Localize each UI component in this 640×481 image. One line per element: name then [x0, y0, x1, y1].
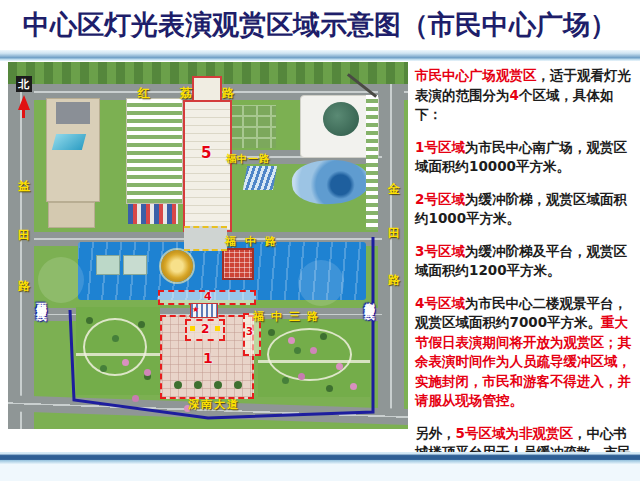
- north-arrow-stem: [22, 108, 25, 118]
- zone4-paragraph: 4号区域为市民中心二楼观景平台，观赏区域面积约7000平方米。重大节假日表演期间…: [415, 294, 639, 411]
- building-glass-atrium: [52, 134, 86, 150]
- plaza-tree: [194, 381, 202, 389]
- title-area: 中心区灯光表演观赏区域示意图（市民中心广场）: [0, 0, 640, 50]
- park-trees: [86, 317, 93, 324]
- zone1-label: 1: [203, 350, 213, 366]
- road-label-fuzhong: 福中路: [225, 234, 285, 249]
- crossing-fuzhong: [184, 226, 227, 251]
- civic-red-pavilion: [222, 248, 254, 280]
- building-color-block: [128, 204, 178, 224]
- building-annex: [48, 202, 95, 228]
- slide: 中心区灯光表演观赏区域示意图（市民中心广场） 北 5: [0, 0, 640, 481]
- title-divider-bar: [0, 50, 640, 61]
- flower-trees: [288, 337, 295, 344]
- zone1-name: 1号区域: [415, 139, 465, 155]
- plaza-tree: [214, 381, 222, 389]
- civic-glass-block-1: [96, 255, 120, 275]
- flower-trees: [122, 359, 129, 366]
- road-label-jintian: 金田路: [385, 172, 402, 310]
- building-blue-rows: [243, 166, 277, 190]
- gate-marker: [215, 326, 220, 331]
- zone4-label: 4: [204, 290, 212, 303]
- north-indicator: 北: [16, 76, 32, 92]
- footer-light-strip: [0, 464, 640, 481]
- road-label-hongli: 红荔路: [138, 85, 264, 102]
- footer-divider-bar: [0, 452, 640, 464]
- zone2-label: 2: [201, 322, 209, 336]
- childrens-palace-dome: [323, 102, 359, 136]
- zone2-name: 2号区域: [415, 191, 465, 207]
- intro-highlight: 市民中心广场观赏区: [415, 67, 537, 83]
- building-striped-rows-west: [126, 98, 183, 204]
- building-blue-wavy: [291, 157, 372, 206]
- civic-golden-dome: [161, 250, 193, 282]
- zone2-paragraph: 2号区域为缓冲阶梯，观赏区域面积约1000平方米。: [415, 190, 639, 229]
- plaza-tree: [234, 381, 242, 389]
- zone3-label: 3: [246, 326, 253, 337]
- civic-glass-block-2: [123, 255, 147, 275]
- building-courtyard-block: [230, 105, 276, 148]
- description-panel: 市民中心广场观赏区，适于观看灯光表演的范围分为4个区域，具体如下： 1号区域为市…: [415, 66, 639, 481]
- road-label-fuzhong3: 福中三路: [253, 309, 325, 324]
- road-label-shennan: 深南大道: [188, 397, 240, 412]
- zone3-name: 3号区域: [415, 243, 465, 259]
- zone1-paragraph: 1号区域为市民中心南广场，观赏区域面积约10000平方米。: [415, 138, 639, 177]
- watermark-blob: [298, 260, 344, 306]
- flag-platform: ★: [190, 303, 218, 318]
- zone4-name: 4号区域: [415, 295, 465, 311]
- building-roof-block: [56, 102, 90, 124]
- building-striped-rows-east: [366, 95, 378, 230]
- road-label-yitian: 益田路: [15, 170, 32, 320]
- east-control-line-label: 东侧管控线: [363, 293, 377, 303]
- plaza-map: 北 5 4 ★: [8, 62, 408, 429]
- flag-star-icon: ★: [192, 304, 199, 316]
- zone5-label: 5: [201, 144, 211, 162]
- road-label-fuzhong1: 福中一路: [226, 152, 270, 166]
- park-southeast: [258, 319, 370, 397]
- page-title: 中心区灯光表演观赏区域示意图（市民中心广场）: [23, 7, 617, 43]
- plaza-tree: [174, 381, 182, 389]
- park-southwest: [76, 307, 160, 395]
- zone3-paragraph: 3号区域为缓冲阶梯及平台，观赏区域面积约1200平方米。: [415, 242, 639, 281]
- zone5-name: 5号区域为非观赏区: [456, 425, 573, 441]
- zone5-lead: 另外，: [415, 425, 456, 441]
- gate-marker: [190, 326, 195, 331]
- zone-count: 4: [510, 87, 519, 103]
- intro-paragraph: 市民中心广场观赏区，适于观看灯光表演的范围分为4个区域，具体如下：: [415, 66, 639, 125]
- zone5-bookcity-roof: 5: [183, 100, 232, 232]
- park-trees: [268, 329, 275, 336]
- zone2-buffer-stairs: 2: [185, 319, 225, 341]
- west-control-line-label: 西侧管控线: [35, 294, 49, 304]
